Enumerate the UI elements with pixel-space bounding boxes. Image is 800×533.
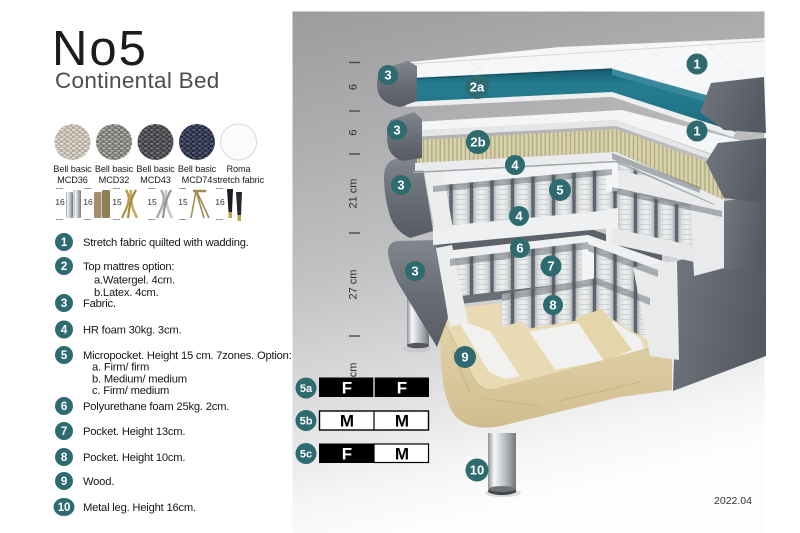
svg-text:Stretch fabric quilted with wa: Stretch fabric quilted with wadding. bbox=[83, 237, 249, 249]
svg-text:1: 1 bbox=[693, 57, 700, 72]
svg-text:3: 3 bbox=[411, 264, 418, 279]
svg-text:1: 1 bbox=[693, 124, 700, 139]
svg-text:4: 4 bbox=[515, 209, 523, 224]
svg-text:Continental Bed: Continental Bed bbox=[55, 68, 220, 93]
svg-text:10: 10 bbox=[58, 502, 70, 514]
svg-text:3: 3 bbox=[61, 298, 67, 310]
svg-text:MCD43: MCD43 bbox=[140, 175, 171, 185]
svg-text:6: 6 bbox=[348, 129, 360, 135]
svg-text:3: 3 bbox=[397, 178, 404, 193]
svg-text:MCD32: MCD32 bbox=[99, 175, 130, 185]
svg-text:5: 5 bbox=[61, 350, 68, 362]
svg-text:15: 15 bbox=[112, 197, 122, 207]
svg-text:HR foam 30kg. 3cm.: HR foam 30kg. 3cm. bbox=[83, 325, 181, 337]
svg-text:F: F bbox=[342, 445, 352, 464]
svg-text:Top mattres option:: Top mattres option: bbox=[83, 261, 174, 273]
svg-text:9: 9 bbox=[61, 476, 67, 488]
svg-text:c. Firm/ medium: c. Firm/ medium bbox=[92, 385, 169, 397]
svg-text:2: 2 bbox=[61, 261, 67, 273]
svg-text:4: 4 bbox=[511, 158, 519, 173]
svg-text:21 cm: 21 cm bbox=[348, 179, 360, 209]
svg-text:Wood.: Wood. bbox=[83, 476, 114, 488]
svg-text:15: 15 bbox=[178, 197, 188, 207]
svg-text:7: 7 bbox=[61, 426, 67, 438]
svg-text:Pocket. Height 10cm.: Pocket. Height 10cm. bbox=[83, 452, 185, 464]
svg-text:MCD74: MCD74 bbox=[182, 175, 213, 185]
svg-text:5c: 5c bbox=[300, 449, 312, 461]
svg-text:16: 16 bbox=[55, 197, 65, 207]
svg-text:a.Watergel. 4cm.: a.Watergel. 4cm. bbox=[94, 274, 175, 286]
svg-text:Bell basic: Bell basic bbox=[178, 164, 217, 174]
svg-text:16: 16 bbox=[215, 197, 225, 207]
svg-text:5b: 5b bbox=[300, 416, 313, 428]
svg-text:8: 8 bbox=[549, 298, 556, 313]
svg-text:7: 7 bbox=[547, 259, 554, 274]
svg-text:3: 3 bbox=[384, 68, 391, 83]
svg-text:8: 8 bbox=[61, 452, 68, 464]
svg-text:Micropocket. Height 15 cm. 7zo: Micropocket. Height 15 cm. 7zones. Optio… bbox=[83, 350, 292, 362]
svg-text:Bell basic: Bell basic bbox=[95, 164, 134, 174]
svg-text:F: F bbox=[397, 379, 407, 398]
svg-text:27 cm: 27 cm bbox=[348, 270, 360, 300]
svg-text:a. Firm/ firm: a. Firm/ firm bbox=[92, 362, 149, 374]
svg-text:15: 15 bbox=[147, 197, 157, 207]
svg-text:M: M bbox=[395, 412, 409, 431]
svg-text:F: F bbox=[342, 379, 352, 398]
svg-text:4: 4 bbox=[61, 325, 68, 337]
svg-text:6: 6 bbox=[61, 401, 67, 413]
svg-text:2022.04: 2022.04 bbox=[714, 495, 752, 507]
svg-text:Metal leg. Height 16cm.: Metal leg. Height 16cm. bbox=[83, 502, 196, 514]
svg-text:16: 16 bbox=[83, 197, 93, 207]
svg-text:Pocket. Height 13cm.: Pocket. Height 13cm. bbox=[83, 426, 185, 438]
svg-text:b.Latex. 4cm.: b.Latex. 4cm. bbox=[94, 287, 159, 299]
svg-text:1: 1 bbox=[61, 237, 68, 249]
svg-text:6: 6 bbox=[516, 241, 523, 256]
svg-text:Roma: Roma bbox=[226, 164, 251, 174]
svg-text:3: 3 bbox=[393, 123, 400, 138]
svg-text:2a: 2a bbox=[470, 80, 485, 95]
svg-text:Polyurethane foam 25kg. 2cm.: Polyurethane foam 25kg. 2cm. bbox=[83, 401, 229, 413]
svg-text:5a: 5a bbox=[300, 383, 313, 395]
svg-text:Fabric.: Fabric. bbox=[83, 298, 116, 310]
svg-text:6: 6 bbox=[348, 84, 360, 90]
svg-text:2b: 2b bbox=[470, 135, 485, 150]
svg-text:5: 5 bbox=[556, 183, 563, 198]
svg-text:b. Medium/ medium: b. Medium/ medium bbox=[92, 373, 187, 385]
svg-text:M: M bbox=[340, 412, 354, 431]
svg-text:10: 10 bbox=[470, 463, 484, 478]
svg-text:Bell basic: Bell basic bbox=[53, 164, 92, 174]
svg-text:MCD36: MCD36 bbox=[57, 175, 88, 185]
svg-text:M: M bbox=[395, 445, 409, 464]
svg-text:stretch fabric: stretch fabric bbox=[213, 175, 265, 185]
svg-text:Bell basic: Bell basic bbox=[136, 164, 175, 174]
svg-text:9: 9 bbox=[461, 350, 468, 365]
